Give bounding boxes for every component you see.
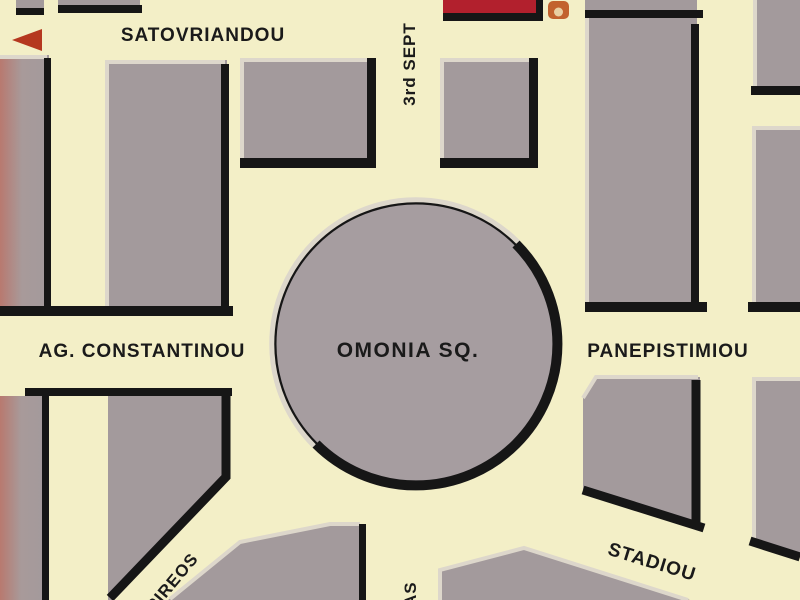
street-label-athinas: ATHINAS: [401, 581, 420, 600]
landmark-icon: [548, 1, 569, 19]
block-bottom-left-corner: [0, 396, 49, 600]
block-top-sliver: [585, 0, 703, 18]
street-casing-south: [25, 388, 232, 396]
street-casing-north: [0, 306, 233, 316]
block-top-edge-b: [58, 0, 142, 13]
street-label-panepistimiou: PANEPISTIMIOU: [587, 341, 749, 362]
block-mid-left: [105, 60, 229, 306]
block-left-upper: [0, 55, 51, 306]
street-label-satovriandou: SATOVRIANDOU: [121, 25, 285, 46]
block-top-right-corner: [751, 0, 800, 95]
block-north-of-square-east: [440, 58, 538, 168]
map-canvas: SATOVRIANDOU 3rd SEPT OMONIA SQ. AG. CON…: [0, 0, 800, 600]
square-label-omonia: OMONIA SQ.: [337, 339, 480, 362]
block-right-middle: [748, 126, 800, 312]
omonia-map: SATOVRIANDOU 3rd SEPT OMONIA SQ. AG. CON…: [0, 0, 800, 600]
block-right-lower: [750, 377, 800, 557]
street-label-ag-constantinou: AG. CONSTANTINOU: [39, 341, 246, 362]
highlighted-building: [443, 0, 543, 21]
block-top-edge-a: [16, 0, 44, 15]
block-north-of-square-west: [240, 58, 376, 168]
block-north-east: [585, 18, 707, 312]
street-label-3rd-sept: 3rd SEPT: [400, 22, 419, 106]
